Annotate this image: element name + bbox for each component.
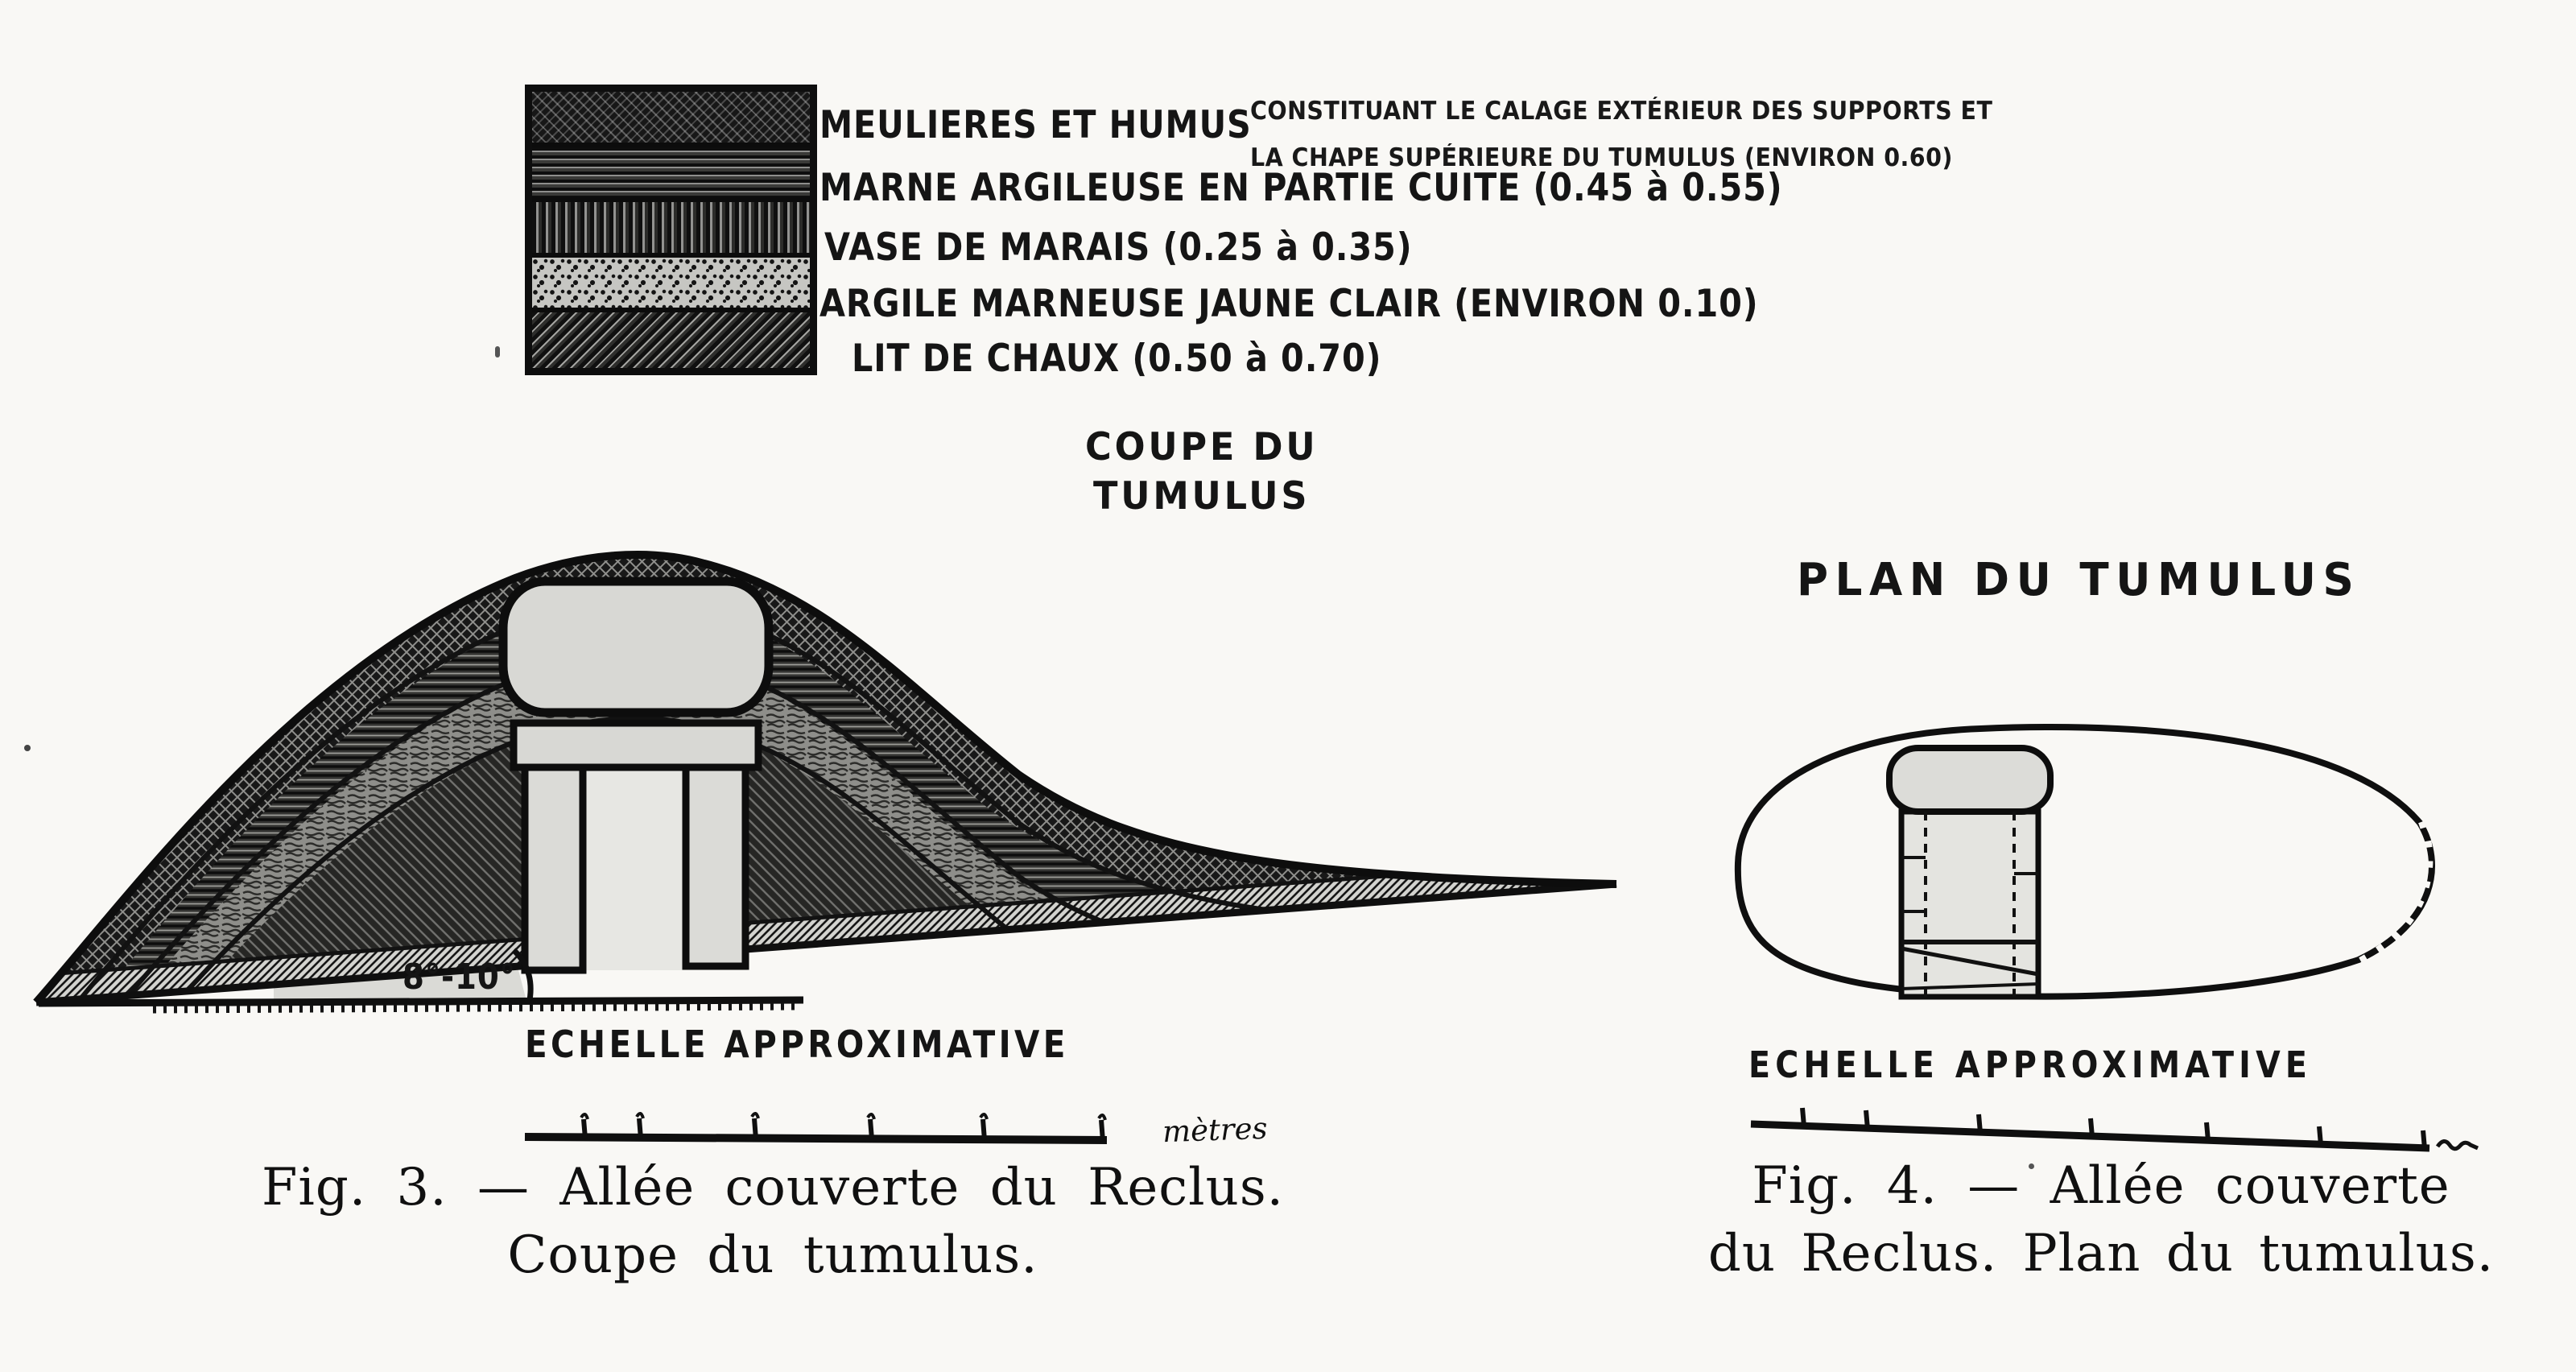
plan-scale-title: ECHELLE APPROXIMATIVE [1748, 1043, 2312, 1086]
layer-pattern-lit-de-chaux [532, 312, 810, 368]
scanned-figure-page: MEULIERES ET HUMUS CONSTITUANT LE CALAGE… [0, 0, 2576, 1372]
legend-label-lit-de-chaux: LIT DE CHAUX (0.50 à 0.70) [852, 337, 1381, 381]
section-scale-unit-label: mètres [1162, 1111, 1268, 1150]
fig3-caption-line2: Coupe du tumulus. [145, 1225, 1401, 1285]
layer-pattern-marne-argileuse [532, 147, 810, 203]
legend-label-vase-de-marais: VASE DE MARAIS (0.25 à 0.35) [824, 225, 1412, 270]
slope-angle-label: 8°-10° [402, 957, 516, 998]
fig3-caption: Fig. 3. — Allée couverte du Reclus. Coup… [145, 1158, 1401, 1285]
legend-annotation-line1: CONSTITUANT LE CALAGE EXTÉRIEUR DES SUPP… [1250, 97, 1992, 126]
scale-bar-line [525, 1137, 1107, 1140]
scale-bar-tick-marks [581, 1114, 1105, 1120]
layer-pattern-argile-marneuse [532, 258, 810, 313]
section-title-line1: COUPE DU [1085, 425, 1318, 469]
capstone [503, 581, 769, 713]
scan-speck [2029, 1163, 2034, 1169]
gallery-capstone [1889, 748, 2050, 812]
legend-label-argile-marneuse: ARGILE MARNEUSE JAUNE CLAIR (ENVIRON 0.1… [819, 282, 1759, 326]
scan-speck [495, 346, 500, 357]
scan-speck [24, 745, 31, 751]
scale-unit-squiggle [2438, 1141, 2478, 1148]
fig4-caption-line1: Fig. 4. — Allée couverte [1630, 1156, 2572, 1216]
stratigraphy-key-swatch [525, 85, 817, 375]
burial-chamber [503, 581, 769, 970]
tumulus-outline [1738, 727, 2432, 997]
section-scale-title: ECHELLE APPROXIMATIVE [525, 1023, 1069, 1066]
layer-pattern-vase-de-marais [532, 202, 810, 258]
gallery-plan [1889, 748, 2050, 997]
tumulus-cross-section-drawing [32, 531, 1626, 1031]
fig4-caption-line2: du Reclus. Plan du tumulus. [1630, 1224, 2572, 1283]
legend-label-marne-argileuse: MARNE ARGILEUSE EN PARTIE CUITE (0.45 à … [819, 166, 1783, 210]
layer-pattern-meulieres-humus [532, 92, 810, 147]
legend-label-meulieres-humus: MEULIERES ET HUMUS [819, 103, 1252, 147]
ground-hatching [153, 1006, 801, 1010]
ground-line [39, 1000, 803, 1003]
right-orthostat [686, 767, 745, 966]
plan-title: PLAN DU TUMULUS [1797, 554, 2360, 606]
section-title: COUPE DU TUMULUS [1010, 425, 1405, 519]
left-orthostat [525, 767, 583, 970]
section-title-line2: TUMULUS [1093, 474, 1310, 519]
fig4-caption: Fig. 4. — Allée couverte du Reclus. Plan… [1630, 1156, 2572, 1283]
mound-layers [36, 555, 1616, 1031]
fig3-caption-line1: Fig. 3. — Allée couverte du Reclus. [145, 1158, 1401, 1217]
tumulus-plan-drawing [1715, 709, 2471, 1023]
table-slab [514, 723, 758, 767]
